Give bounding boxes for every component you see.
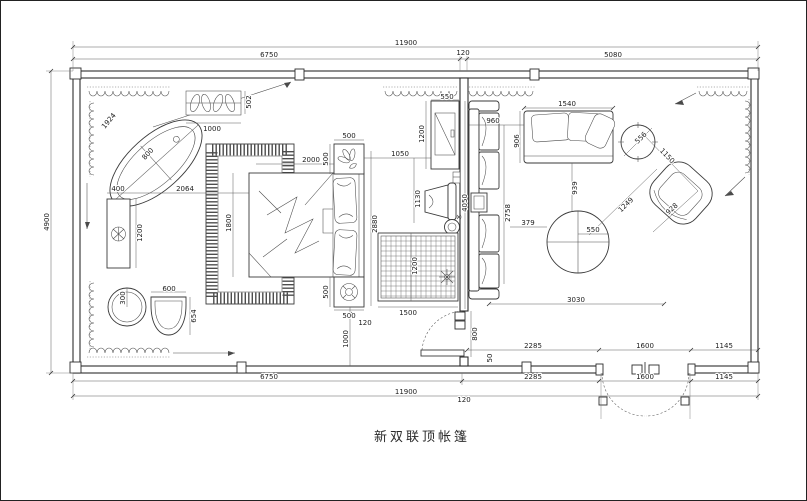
dim-ns-bot-w: 500 bbox=[342, 312, 355, 320]
dim-bot-6750: 6750 bbox=[260, 373, 278, 381]
dim-van-2064: 2064 bbox=[176, 185, 194, 193]
dim-in-1145: 1145 bbox=[715, 342, 733, 350]
dim-chair-1130: 1130 bbox=[414, 190, 422, 208]
dim-bot-1600: 1600 bbox=[636, 373, 654, 381]
dim-left-4900: 4900 bbox=[43, 213, 51, 231]
floorplan-canvas: 11900 6750 120 5080 4900 2285 1600 1145 … bbox=[0, 0, 807, 501]
dim-bot-120: 120 bbox=[457, 396, 470, 404]
basin-chair-icon bbox=[151, 297, 186, 335]
dim-bot-total: 11900 bbox=[395, 388, 417, 396]
dim-top-6750: 6750 bbox=[260, 51, 278, 59]
dim-tub-1924: 1924 bbox=[100, 111, 118, 130]
vanity-icon bbox=[107, 199, 130, 268]
dim-top-120: 120 bbox=[456, 49, 469, 57]
dim-lsofa-2758: 2758 bbox=[504, 204, 512, 222]
dim-rad-502: 502 bbox=[245, 95, 253, 108]
dim-liv-4050: 4050 bbox=[461, 194, 469, 212]
dim-bed-1800: 1800 bbox=[225, 214, 233, 232]
entry-double-door bbox=[596, 362, 695, 419]
dim-tv-550: 550 bbox=[440, 93, 453, 101]
dim-bed-2000: 2000 bbox=[302, 156, 320, 164]
dim-top-5080: 5080 bbox=[604, 51, 622, 59]
dim-basin-654: 654 bbox=[190, 309, 198, 323]
ceiling-light-icon bbox=[439, 269, 455, 285]
tv-cabinet-icon bbox=[431, 101, 460, 183]
dim-in-1600: 1600 bbox=[636, 342, 654, 350]
dim-ns-top-d: 500 bbox=[322, 152, 330, 165]
dim-gap-1000: 1000 bbox=[342, 330, 350, 348]
dim-bot-1145: 1145 bbox=[715, 373, 733, 381]
dim-bot-2285: 2285 bbox=[524, 373, 542, 381]
nightstand-top bbox=[334, 144, 364, 174]
dim-gap-120: 120 bbox=[358, 319, 371, 327]
sofa-icon bbox=[524, 111, 617, 163]
armchair-icon bbox=[643, 155, 719, 231]
dim-van-400: 400 bbox=[111, 185, 124, 193]
dim-rug-1200: 1200 bbox=[411, 257, 419, 275]
dim-tv-1050: 1050 bbox=[391, 150, 409, 158]
dim-liv-960: 960 bbox=[486, 117, 499, 125]
dim-rug-1500: 1500 bbox=[399, 309, 417, 317]
dim-sofa-1540: 1540 bbox=[558, 100, 576, 108]
stool-icon bbox=[445, 220, 460, 235]
dim-in-2285: 2285 bbox=[524, 342, 542, 350]
desk-chair-icon bbox=[425, 183, 462, 220]
dim-van-1200: 1200 bbox=[136, 224, 144, 242]
dim-toilet-300: 300 bbox=[119, 291, 127, 304]
coffee-table-icon bbox=[547, 211, 609, 273]
drawing-title: 新双联顶帐篷 bbox=[374, 429, 470, 445]
sofa-side-table-icon bbox=[471, 193, 487, 212]
radiator-icon bbox=[186, 91, 241, 115]
partition-door bbox=[421, 311, 465, 356]
dim-top-total: 11900 bbox=[395, 39, 417, 47]
bed-icon bbox=[249, 173, 364, 277]
dim-room-2880: 2880 bbox=[371, 215, 379, 233]
dim-diag-1249: 1249 bbox=[617, 196, 635, 214]
dim-wall-50: 50 bbox=[486, 354, 494, 363]
dim-tv-1200: 1200 bbox=[418, 125, 426, 143]
dim-tbl-550: 550 bbox=[586, 226, 599, 234]
dim-rad-1000: 1000 bbox=[203, 125, 221, 133]
dim-door-800: 800 bbox=[471, 327, 479, 340]
nightstand-bottom bbox=[334, 277, 364, 307]
dim-liv-3030: 3030 bbox=[567, 296, 585, 304]
dim-basin-600: 600 bbox=[162, 285, 175, 293]
dim-ns-bot-d: 500 bbox=[322, 285, 330, 298]
dim-tbl-939: 939 bbox=[571, 181, 579, 194]
l-sofa-icon bbox=[469, 101, 499, 299]
dim-ns-top-w: 500 bbox=[342, 132, 355, 140]
dim-sofa-906: 906 bbox=[513, 134, 521, 148]
dim-tbl-379: 379 bbox=[521, 219, 534, 227]
